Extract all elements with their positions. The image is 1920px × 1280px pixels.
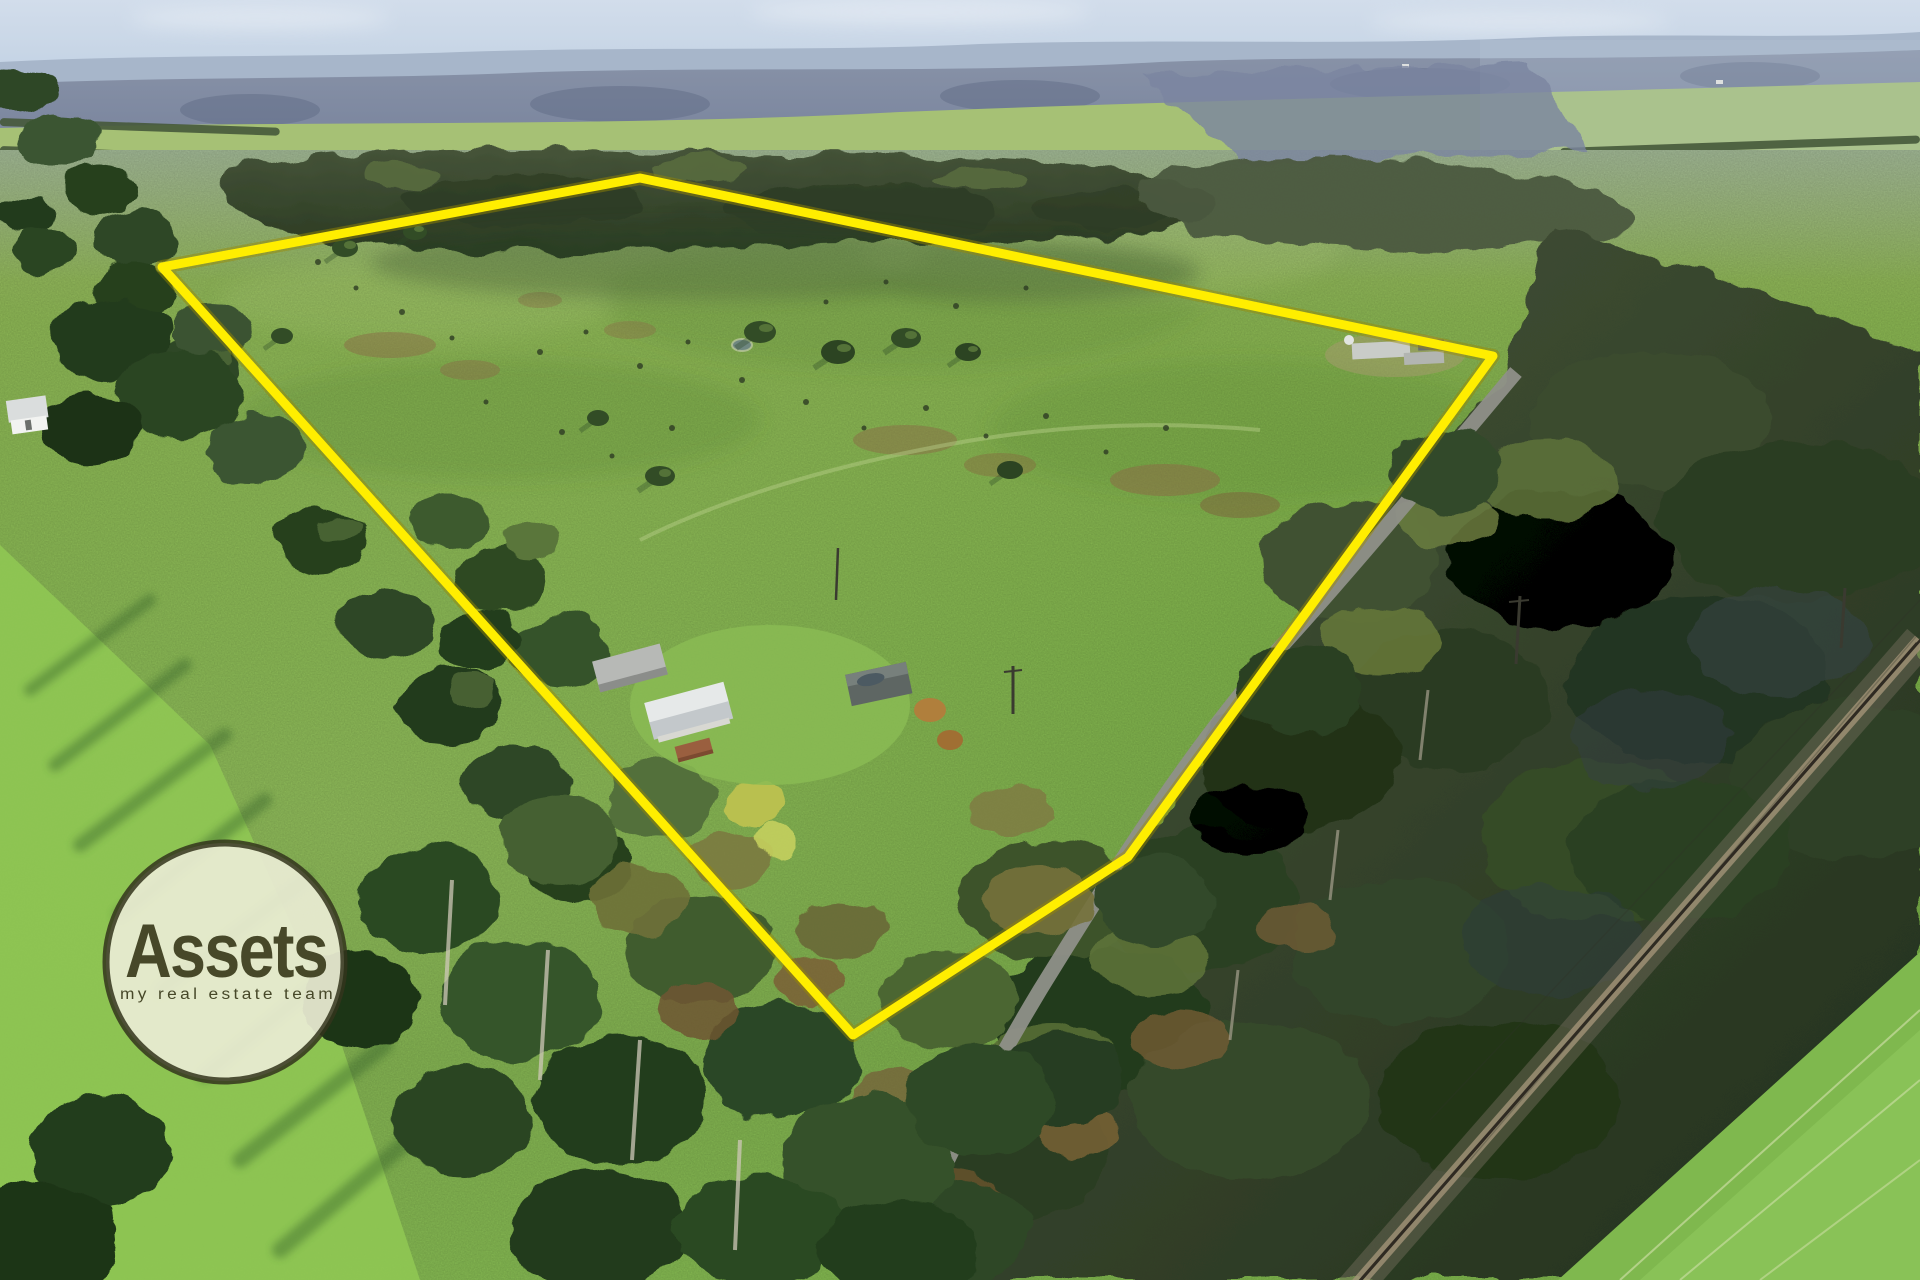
aerial-photo-stage: Assets my real estate team [0, 0, 1920, 1280]
water-tank [1344, 335, 1354, 345]
tagline-text: my real estate team [120, 986, 336, 1003]
aerial-photo: Assets my real estate team [0, 0, 1920, 1280]
neighbour-house [6, 395, 50, 434]
brand-text: Assets [125, 909, 327, 994]
watermark-logo: Assets my real estate team [106, 843, 344, 1081]
